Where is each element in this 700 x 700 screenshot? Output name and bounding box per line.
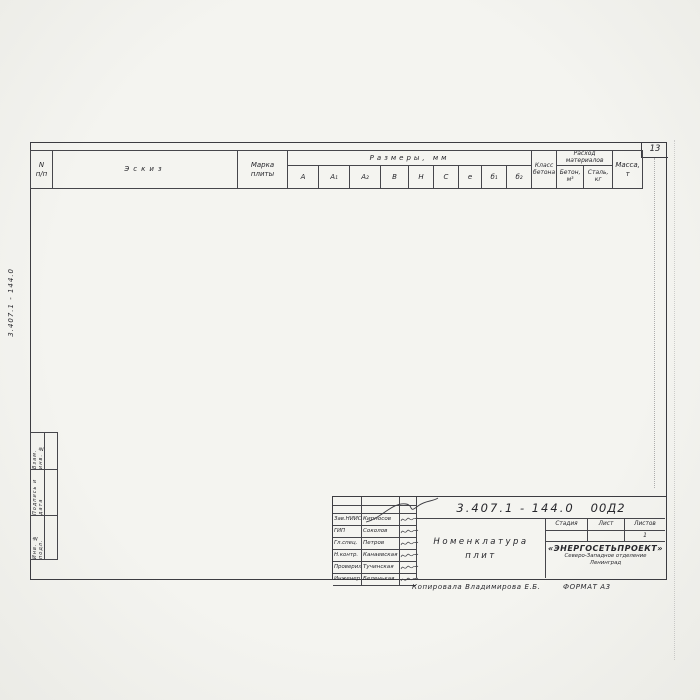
signer-role: ГИП [333,526,362,537]
margin-box-label: Инв. № подл. [31,516,45,559]
col-header-mass: Масса,т [613,151,643,189]
organization-name: «ЭНЕРГОСЕТЬПРОЕКТ» [546,544,665,553]
stage-sheet-headers: Стадия Лист Листов [546,519,665,531]
signer-row-blank [333,497,416,506]
col-group-materials: Расходматериалов [557,151,613,166]
col-header-mark: Маркаплиты [238,151,288,189]
col-header-a1: А₁ [319,166,350,189]
signer-name: Кирносов [362,514,400,525]
stage-label: Стадия [546,519,588,530]
copied-by-note: Копировала Владимирова Е.Б. [412,583,541,591]
signer-role: Зав.НИИС [333,514,362,525]
organization-branch: Северо-Западное отделение [546,553,665,560]
format-note: ФОРМАТ А3 [563,583,611,591]
col-header-b: В [381,166,409,189]
title-block: Зав.НИИСКирносовГИПСоколовГл.спец.Петров… [332,496,667,580]
document-number: 3.407.1 - 144.0 00Д2 [416,497,665,519]
signer-role: Инженер [333,574,362,585]
signature-table: Зав.НИИСКирносовГИПСоколовГл.спец.Петров… [333,497,416,578]
document-number-text: 3.407.1 - 144.0 [456,501,574,515]
page-number: 13 [641,142,668,158]
signer-row: ПроверилТучинская [333,562,416,574]
signature-stroke [400,562,416,573]
signature-stroke [400,514,416,525]
sheet-title-line2: плит [465,551,496,561]
col-header-e: е [459,166,482,189]
signer-role: Н.контр. [333,550,362,561]
organization-city: Ленинград [546,560,665,567]
signer-row: ГИПСоколов [333,526,416,538]
margin-box-space [45,470,57,515]
col-header-h: Н [409,166,434,189]
signer-name: Петров [362,538,400,549]
sheet-value [588,531,625,541]
margin-box-space [45,516,57,559]
margin-box-label: Взам. инв. № [31,433,45,469]
sheet-title-line1: Номенклатура [433,537,528,547]
margin-stamp-boxes: Взам. инв. № Подпись и дата Инв. № подл. [30,432,58,560]
signature-stroke [400,550,416,561]
col-header-a: А [288,166,319,189]
plates-table: Nп/п Эскиз Маркаплиты Размеры, мм Классб… [30,150,643,189]
side-document-number: 3.407.1 - 144.0 [2,242,20,362]
col-header-steel-weight: Сталь,кг [584,166,613,189]
signature-stroke [400,526,416,537]
side-document-number-text: 3.407.1 - 144.0 [7,268,15,337]
margin-box-label: Подпись и дата [31,470,45,515]
col-header-b1: б₁ [482,166,507,189]
signer-row: Зав.НИИСКирносов [333,514,416,526]
signer-row: ИнженерБеленькая [333,574,416,586]
signer-role: Гл.спец. [333,538,362,549]
col-header-b2: б₂ [507,166,532,189]
paper-edge-line [674,140,675,660]
sheets-label: Листов [625,519,665,530]
margin-box: Подпись и дата [30,470,58,516]
signer-row-blank [333,506,416,515]
col-header-concrete-class: Классбетона [532,151,557,189]
signer-row: Гл.спец.Петров [333,538,416,550]
stage-value [546,531,588,541]
signer-name: Соколов [362,526,400,537]
col-header-c: С [434,166,459,189]
signature-stroke [400,538,416,549]
signer-role: Проверил [333,562,362,573]
sheet-title: Номенклатура плит [416,519,545,578]
margin-box: Взам. инв. № [30,432,58,470]
document-number-suffix: 00Д2 [591,501,626,515]
col-header-sketch: Эскиз [53,151,238,189]
signer-name: Канаевская [362,550,400,561]
signer-row: Н.контр.Канаевская [333,550,416,562]
col-header-num: Nп/п [31,151,53,189]
col-header-a2: А₂ [350,166,381,189]
title-block-right: Стадия Лист Листов 1 «ЭНЕРГОСЕТЬПРОЕКТ» … [545,519,665,578]
table-header: Nп/п Эскиз Маркаплиты Размеры, мм Классб… [31,151,643,189]
signer-name: Беленькая [362,574,400,585]
signer-name: Тучинская [362,562,400,573]
margin-box: Инв. № подл. [30,516,58,560]
margin-box-space [45,433,57,469]
col-header-concrete-volume: Бетон,м³ [557,166,584,189]
sheet-label: Лист [588,519,625,530]
sheets-value: 1 [625,531,665,541]
stage-sheet-values: 1 [546,531,665,542]
fold-mark-line [654,158,655,488]
organization: «ЭНЕРГОСЕТЬПРОЕКТ» Северо-Западное отдел… [546,542,665,567]
col-group-dimensions: Размеры, мм [288,151,532,166]
